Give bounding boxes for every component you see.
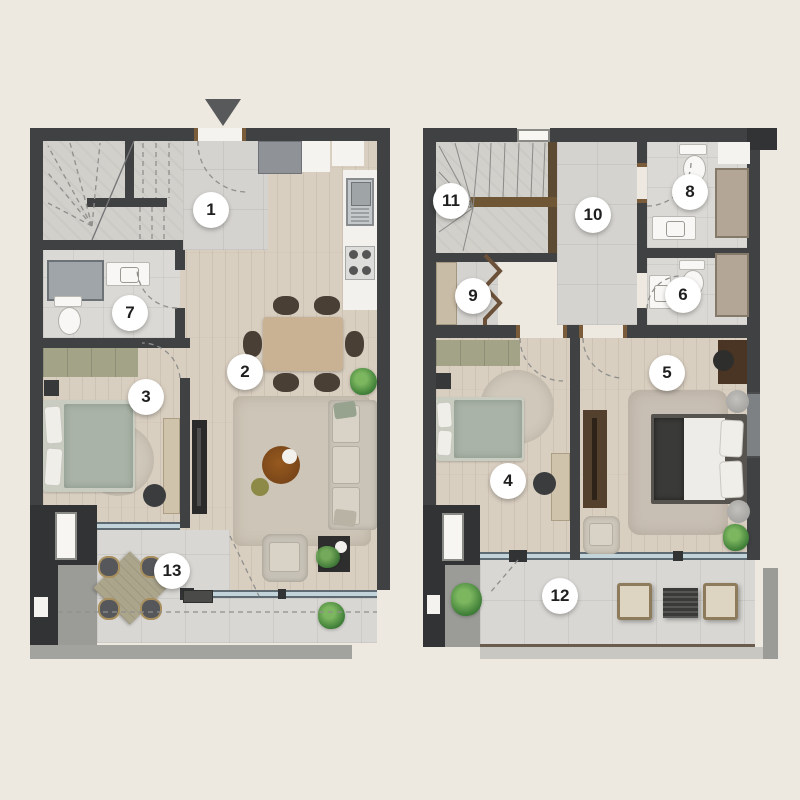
entrance-arrow-icon [205, 99, 241, 126]
pillow [436, 430, 453, 457]
lower-ledge [480, 647, 778, 659]
terrace-strip-floor [185, 598, 377, 643]
pillow [719, 460, 744, 498]
burner [362, 250, 371, 259]
floor-plan-page: { "title": "Duplex apartment floor plans… [0, 0, 800, 800]
room-number: 7 [125, 303, 134, 323]
dining-chair [273, 296, 299, 315]
room-badge-6: 6 [665, 277, 701, 313]
wall [550, 128, 775, 142]
entry-cabinet [258, 141, 302, 174]
plant-icon [318, 602, 345, 629]
tv-screen [197, 428, 201, 506]
hallway-floor [557, 142, 637, 325]
sofa [328, 400, 377, 530]
toilet-icon [58, 307, 81, 335]
desk-chair [533, 472, 556, 495]
toilet-tank [679, 144, 707, 155]
structural-ledge [58, 565, 97, 647]
wall [637, 203, 647, 248]
plant-icon [316, 546, 340, 568]
pillow [436, 402, 453, 429]
stair-railing [470, 197, 557, 207]
wall [30, 128, 195, 141]
doormat [183, 590, 213, 603]
room-number: 9 [468, 286, 477, 306]
room-number: 5 [662, 363, 671, 383]
desk [163, 418, 180, 514]
wall [637, 308, 647, 325]
room-badge-8: 8 [672, 174, 708, 210]
bed-blanket [454, 400, 522, 458]
door-jamb [194, 128, 198, 141]
wall [423, 128, 436, 513]
nightstand [436, 373, 451, 389]
armchair [583, 516, 620, 554]
room-number: 10 [584, 205, 603, 225]
room-number: 4 [503, 471, 512, 491]
balcony-chair [98, 556, 120, 578]
sofa-pillow [333, 401, 357, 420]
room-number: 12 [551, 586, 570, 606]
armchair-cushion [269, 542, 300, 572]
burner [349, 266, 358, 275]
dining-table [263, 317, 343, 371]
outdoor-table [663, 588, 698, 618]
coffee-table-tray [282, 449, 297, 464]
room-badge-13: 13 [154, 553, 190, 589]
wall [175, 250, 185, 270]
room-number: 2 [240, 362, 249, 382]
sink-basin [666, 221, 685, 237]
room-badge-9: 9 [455, 278, 491, 314]
lower-ledge [30, 645, 352, 659]
balcony-chair [98, 598, 120, 620]
lounge-chair [617, 583, 652, 620]
kitchen-sink [346, 178, 374, 226]
wall [30, 240, 183, 250]
stair-window [517, 129, 550, 142]
side-window [442, 513, 464, 561]
pouf [726, 390, 749, 413]
room-number: 13 [163, 561, 182, 581]
wall [623, 325, 760, 338]
wall [245, 128, 390, 141]
toilet-tank [54, 296, 82, 307]
room-badge-12: 12 [542, 578, 578, 614]
room-badge-2: 2 [227, 354, 263, 390]
wall [180, 338, 190, 348]
room-badge-11: 11 [433, 183, 469, 219]
tv-screen [592, 418, 597, 500]
kitchen-window-niche [332, 141, 364, 166]
kitchen-hob [345, 246, 375, 280]
lounge-chair [703, 583, 738, 620]
pillow [719, 419, 744, 457]
wall [30, 128, 43, 508]
closet-cabinet [436, 262, 457, 325]
dining-chair [345, 331, 364, 357]
sink-drainboard [351, 208, 369, 222]
room-number: 6 [678, 285, 687, 305]
wall [637, 142, 647, 163]
side-ledge [763, 568, 778, 659]
room-number: 3 [141, 387, 150, 407]
wall [436, 253, 557, 262]
wall [637, 258, 647, 273]
room-number: 8 [685, 182, 694, 202]
entry-door-opening [198, 128, 242, 141]
room-badge-1: 1 [193, 192, 229, 228]
room-number: 11 [442, 191, 460, 211]
dining-chair [314, 373, 340, 392]
room-badge-5: 5 [649, 355, 685, 391]
armchair [262, 534, 308, 582]
door-jamb [623, 325, 627, 338]
room-badge-7: 7 [112, 295, 148, 331]
wall [180, 378, 190, 528]
wall [377, 128, 390, 590]
bathroom-sink [106, 262, 150, 286]
desk-chair [143, 484, 166, 507]
balcony-chair [140, 598, 162, 620]
stairwell-floor [43, 141, 183, 250]
dining-chair [273, 373, 299, 392]
shower-tray [715, 253, 749, 317]
bed-throw [654, 418, 684, 500]
door-jamb [242, 128, 246, 141]
shower-tray [47, 260, 104, 301]
wall [43, 338, 185, 348]
stair-partition [125, 141, 134, 201]
toilet-tank [679, 260, 705, 270]
side-window [55, 512, 77, 560]
wall-niche [427, 595, 440, 614]
plant-icon [350, 368, 377, 395]
door-jamb [637, 163, 647, 167]
sofa-cushion [332, 446, 360, 484]
wall-niche [34, 597, 48, 617]
lower-floor-plan: 1 7 2 3 13 [30, 128, 390, 673]
room-number: 1 [206, 200, 215, 220]
door-jamb [637, 199, 647, 203]
door-jamb [563, 325, 567, 338]
pillow [44, 447, 64, 486]
room-badge-4: 4 [490, 463, 526, 499]
desk-chair [713, 350, 734, 371]
entry-closet [302, 141, 330, 172]
plant-icon [451, 583, 482, 616]
stool [251, 478, 269, 496]
sink-basin [351, 182, 371, 206]
tv-console [583, 410, 607, 508]
room-badge-3: 3 [128, 379, 164, 415]
burner [349, 250, 358, 259]
wall [570, 338, 580, 560]
upper-floor-plan: 11 10 8 9 6 5 4 12 [423, 128, 779, 673]
room-badge-10: 10 [575, 197, 611, 233]
door-jamb [516, 325, 520, 338]
plant-icon [723, 524, 749, 551]
shower-tray [715, 168, 749, 238]
door-jamb [579, 325, 583, 338]
entry-hall-floor [183, 141, 268, 250]
wall [423, 128, 517, 142]
armchair-cushion [589, 523, 613, 546]
stair-partition [87, 198, 167, 207]
window-niche [718, 142, 750, 164]
window-mullion [278, 589, 286, 599]
bedroom-window [90, 522, 180, 530]
wall [436, 325, 520, 338]
tv-console [192, 420, 207, 514]
sofa-pillow [333, 509, 357, 528]
bed-blanket [64, 404, 133, 488]
nightstand [44, 380, 59, 396]
wardrobe [43, 348, 138, 377]
wardrobe [436, 340, 520, 366]
pouf [727, 500, 750, 523]
sink-basin [120, 267, 139, 283]
bathroom-sink [652, 216, 696, 240]
window-mullion [673, 551, 683, 561]
burner [362, 266, 371, 275]
pillow [44, 405, 64, 444]
dining-chair [314, 296, 340, 315]
structural-corner [747, 128, 777, 150]
balcony-door-frame [509, 550, 527, 562]
